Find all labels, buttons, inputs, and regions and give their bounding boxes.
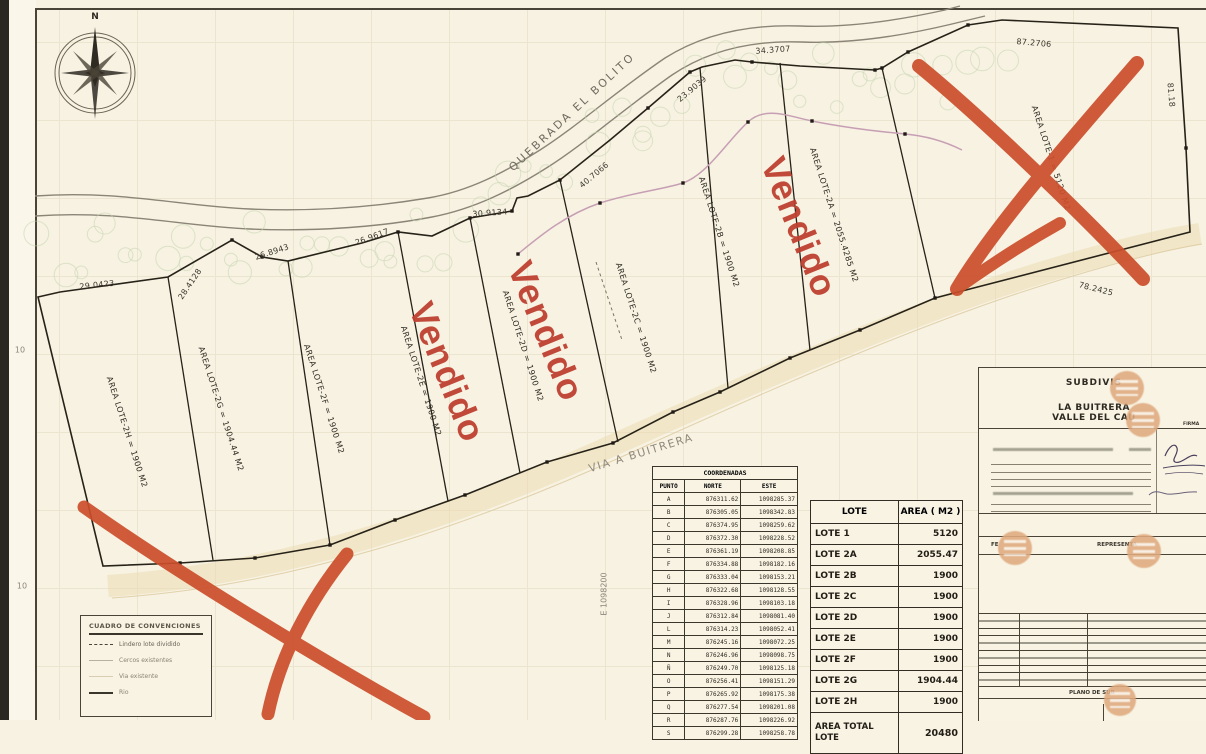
- table-cell: 1098258.78: [741, 727, 798, 740]
- table-cell: 1900: [899, 692, 963, 713]
- grid-edge-label: 10: [15, 346, 25, 355]
- table-cell: 1098228.52: [741, 532, 798, 545]
- compass-rose: [55, 27, 135, 119]
- legend-item-label: Lindero lote dividido: [119, 641, 180, 648]
- table-cell: 876277.54: [685, 701, 741, 714]
- table-row: LOTE 2D1900: [811, 608, 963, 629]
- table-cell: 876256.41: [685, 675, 741, 688]
- col-header-lote: LOTE: [811, 501, 899, 524]
- table-row: LOTE 15120: [811, 524, 963, 545]
- table-cell: H: [653, 584, 685, 597]
- col-header-este: ESTE: [741, 480, 798, 493]
- table-cell: 1098103.18: [741, 597, 798, 610]
- table-cell: 1900: [899, 650, 963, 671]
- table-cell: 1098081.40: [741, 610, 798, 623]
- coordinates-table-title: COORDENADAS: [653, 467, 798, 480]
- grid-east-label: E 1098200: [600, 572, 609, 615]
- table-row: LOTE 2C1900: [811, 587, 963, 608]
- legend-item-label: Cercos existentes: [119, 657, 172, 664]
- compass-north-label: N: [91, 12, 99, 22]
- redaction-stamp: [998, 531, 1032, 565]
- table-cell: LOTE 2D: [811, 608, 899, 629]
- redaction-stamp: [1110, 371, 1144, 405]
- table-cell: R: [653, 714, 685, 727]
- col-header-area: AREA ( M2 ): [899, 501, 963, 524]
- table-row: L876314.231098052.41: [653, 623, 798, 636]
- table-cell: 876312.84: [685, 610, 741, 623]
- table-row: LOTE 2H1900: [811, 692, 963, 713]
- table-cell: 876333.04: [685, 571, 741, 584]
- table-cell: 876305.05: [685, 506, 741, 519]
- table-cell: 1098125.18: [741, 662, 798, 675]
- table-cell: O: [653, 675, 685, 688]
- table-cell: LOTE 2H: [811, 692, 899, 713]
- total-label: AREA TOTAL LOTE: [811, 713, 899, 754]
- table-row: D876372.301098228.52: [653, 532, 798, 545]
- firma-label: FIRMA: [1183, 422, 1199, 427]
- thin-line-symbol: [89, 660, 113, 661]
- table-row: B876305.051098342.83: [653, 506, 798, 519]
- table-cell: 1904.44: [899, 671, 963, 692]
- table-row: LOTE 2A2055.47: [811, 545, 963, 566]
- faint-line-symbol: [89, 676, 113, 677]
- redaction-stamp: [1104, 684, 1136, 716]
- table-cell: 1098175.38: [741, 688, 798, 701]
- col-header-punto: PUNTO: [653, 480, 685, 493]
- table-row: LOTE 2E1900: [811, 629, 963, 650]
- table-row: A876311.621098285.37: [653, 493, 798, 506]
- table-total-row: AREA TOTAL LOTE 20480: [811, 713, 963, 754]
- table-cell: 876249.70: [685, 662, 741, 675]
- legend-title: CUADRO DE CONVENCIONES: [89, 622, 203, 630]
- table-cell: 876361.19: [685, 545, 741, 558]
- table-cell: Ñ: [653, 662, 685, 675]
- table-cell: 1098098.75: [741, 649, 798, 662]
- table-cell: N: [653, 649, 685, 662]
- table-row: Q876277.541098201.08: [653, 701, 798, 714]
- scanned-subdivision-plan: { "map": { "compass_label": "N", "creek_…: [0, 0, 1206, 720]
- table-cell: 876265.92: [685, 688, 741, 701]
- table-cell: 1098208.85: [741, 545, 798, 558]
- table-row: LOTE 2G1904.44: [811, 671, 963, 692]
- redaction-stamp: [1126, 403, 1160, 437]
- table-cell: P: [653, 688, 685, 701]
- table-cell: 1098153.21: [741, 571, 798, 584]
- table-cell: LOTE 2B: [811, 566, 899, 587]
- table-cell: 1098342.83: [741, 506, 798, 519]
- table-cell: B: [653, 506, 685, 519]
- table-row: H876322.681098128.55: [653, 584, 798, 597]
- table-row: R876287.761098226.92: [653, 714, 798, 727]
- table-row: J876312.841098081.40: [653, 610, 798, 623]
- revision-table-stripes: [979, 613, 1206, 687]
- table-cell: 1098226.92: [741, 714, 798, 727]
- table-cell: 2055.47: [899, 545, 963, 566]
- table-cell: F: [653, 558, 685, 571]
- table-cell: 876328.96: [685, 597, 741, 610]
- table-cell: 1098259.62: [741, 519, 798, 532]
- handwritten-note: [1147, 485, 1203, 503]
- table-cell: I: [653, 597, 685, 610]
- table-cell: 876299.28: [685, 727, 741, 740]
- table-cell: M: [653, 636, 685, 649]
- table-row: LOTE 2B1900: [811, 566, 963, 587]
- table-cell: S: [653, 727, 685, 740]
- table-cell: 5120: [899, 524, 963, 545]
- table-row: Ñ876249.701098125.18: [653, 662, 798, 675]
- table-cell: A: [653, 493, 685, 506]
- table-cell: 876372.30: [685, 532, 741, 545]
- table-row: I876328.961098103.18: [653, 597, 798, 610]
- table-row: M876245.161098072.25: [653, 636, 798, 649]
- grid-edge-label: 10: [17, 582, 27, 591]
- thick-line-symbol: [89, 692, 113, 694]
- legend-rule: [89, 633, 203, 635]
- table-cell: 876314.23: [685, 623, 741, 636]
- table-cell: 876334.88: [685, 558, 741, 571]
- table-cell: C: [653, 519, 685, 532]
- table-cell: LOTE 2C: [811, 587, 899, 608]
- table-cell: 1900: [899, 566, 963, 587]
- table-cell: 1900: [899, 629, 963, 650]
- table-cell: 1098072.25: [741, 636, 798, 649]
- table-row: O876256.411098151.29: [653, 675, 798, 688]
- table-cell: G: [653, 571, 685, 584]
- legend-item: Lindero lote dividido: [89, 641, 203, 648]
- table-cell: 1098285.37: [741, 493, 798, 506]
- lot-area-table: LOTE AREA ( M2 ) LOTE 15120LOTE 2A2055.4…: [810, 500, 963, 754]
- table-row: LOTE 2F1900: [811, 650, 963, 671]
- table-cell: LOTE 2F: [811, 650, 899, 671]
- table-row: F876334.881098182.16: [653, 558, 798, 571]
- table-row: P876265.921098175.38: [653, 688, 798, 701]
- table-cell: 1098128.55: [741, 584, 798, 597]
- table-cell: 876374.95: [685, 519, 741, 532]
- table-cell: 876246.96: [685, 649, 741, 662]
- legend-item-label: Via existente: [119, 673, 158, 680]
- redaction-stamp: [1127, 534, 1161, 568]
- table-row: N876246.961098098.75: [653, 649, 798, 662]
- table-cell: Q: [653, 701, 685, 714]
- table-cell: 1098052.41: [741, 623, 798, 636]
- total-value: 20480: [899, 713, 963, 754]
- table-cell: J: [653, 610, 685, 623]
- table-cell: 876245.16: [685, 636, 741, 649]
- table-cell: 876311.62: [685, 493, 741, 506]
- table-cell: 1900: [899, 608, 963, 629]
- legend-item-label: Rio: [119, 689, 129, 696]
- table-cell: 876287.76: [685, 714, 741, 727]
- legend-box: CUADRO DE CONVENCIONES Lindero lote divi…: [80, 615, 212, 717]
- table-cell: 876322.68: [685, 584, 741, 597]
- legend-item: Rio: [89, 689, 203, 696]
- table-cell: LOTE 2A: [811, 545, 899, 566]
- signature: [1159, 430, 1206, 478]
- table-cell: E: [653, 545, 685, 558]
- table-cell: 1098201.08: [741, 701, 798, 714]
- table-cell: 1900: [899, 587, 963, 608]
- table-cell: 1098151.29: [741, 675, 798, 688]
- col-header-norte: NORTE: [685, 480, 741, 493]
- table-row: C876374.951098259.62: [653, 519, 798, 532]
- dashed-line-symbol: [89, 644, 113, 645]
- table-cell: LOTE 2G: [811, 671, 899, 692]
- table-cell: L: [653, 623, 685, 636]
- table-cell: 1098182.16: [741, 558, 798, 571]
- table-row: G876333.041098153.21: [653, 571, 798, 584]
- legend-item: Cercos existentes: [89, 657, 203, 664]
- table-cell: LOTE 2E: [811, 629, 899, 650]
- table-cell: D: [653, 532, 685, 545]
- coordinates-table: COORDENADAS PUNTO NORTE ESTE A876311.621…: [652, 466, 798, 740]
- table-row: S876299.281098258.78: [653, 727, 798, 740]
- table-row: E876361.191098208.85: [653, 545, 798, 558]
- legend-item: Via existente: [89, 673, 203, 680]
- table-cell: LOTE 1: [811, 524, 899, 545]
